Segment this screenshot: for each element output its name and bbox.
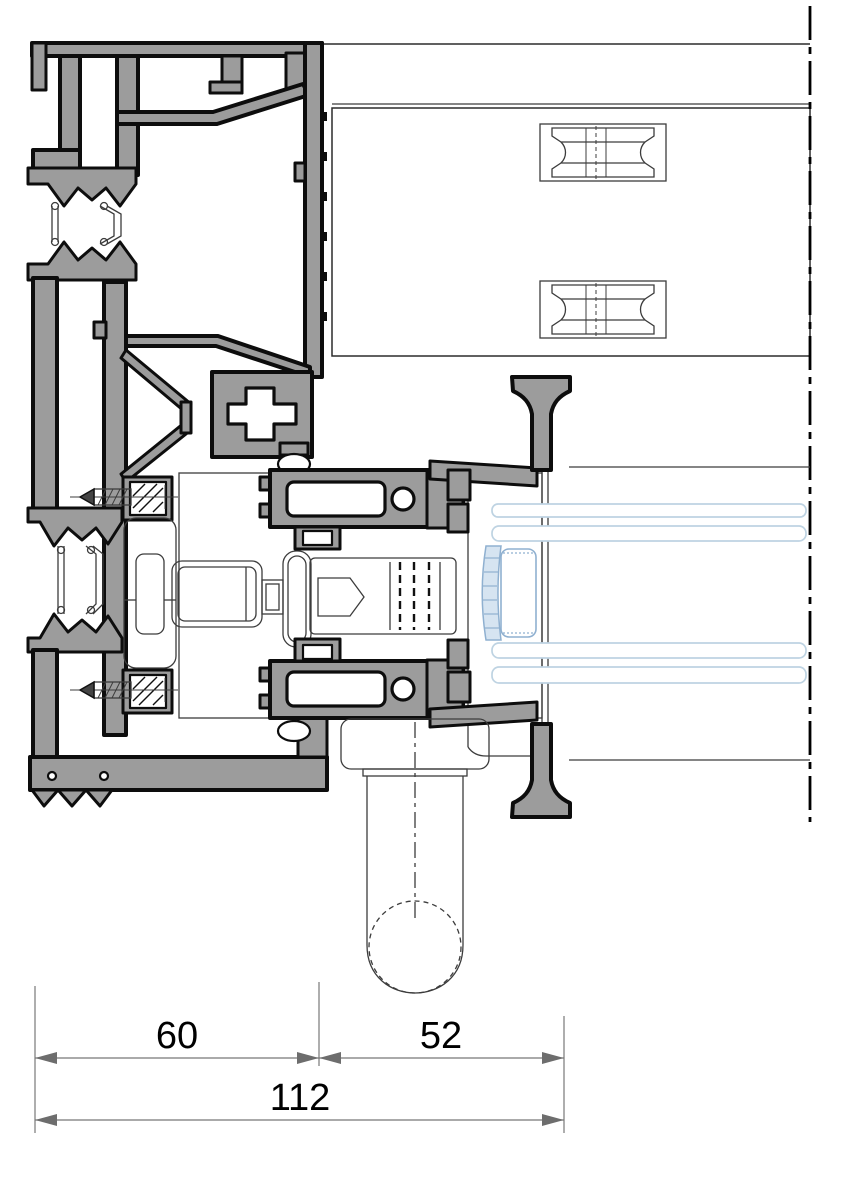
wall-panel-box [332,108,810,356]
glass-pane-2 [492,526,806,541]
lock-assembly [124,518,456,668]
technical-drawing-page: 60 52 112 [0,0,841,1200]
sill-foot-serration [32,790,112,806]
glass-unit [482,504,806,683]
glazing-bead-clips [448,470,470,702]
roller-detail-2 [540,281,666,338]
dimension-block: 60 52 112 [35,982,564,1133]
dimension-label-112: 112 [270,1077,331,1119]
fixed-sash-wall-lines [542,447,548,763]
glass-spacer [482,546,536,640]
handle-assembly [341,719,489,993]
glass-pane-4 [492,667,806,683]
roller-detail-1 [540,124,666,181]
gasket-lower [278,721,310,741]
screw-tip-icon [80,489,94,505]
thermal-break-upper [28,168,136,280]
lock-cylinder-body [172,561,262,627]
escutcheon-plate [283,551,311,647]
interlock-top [512,377,570,470]
guide-shoe [124,518,176,668]
frame-outer-wall [33,278,57,510]
glass-pane-3 [492,643,806,658]
glass-pane-1 [492,504,806,517]
frame-head-hook [32,43,46,90]
lock-bolt [318,578,364,616]
dimension-label-60: 60 [156,1015,198,1057]
screw-tip-icon [80,682,94,698]
interlock-bottom [512,724,570,817]
lock-case [310,558,456,634]
dimension-label-52: 52 [420,1015,462,1057]
frame-sill [30,757,327,790]
screw-fixing-lower [70,670,178,713]
profile-section-drawing: 60 52 112 [0,0,841,1200]
wall-panel [318,44,810,356]
